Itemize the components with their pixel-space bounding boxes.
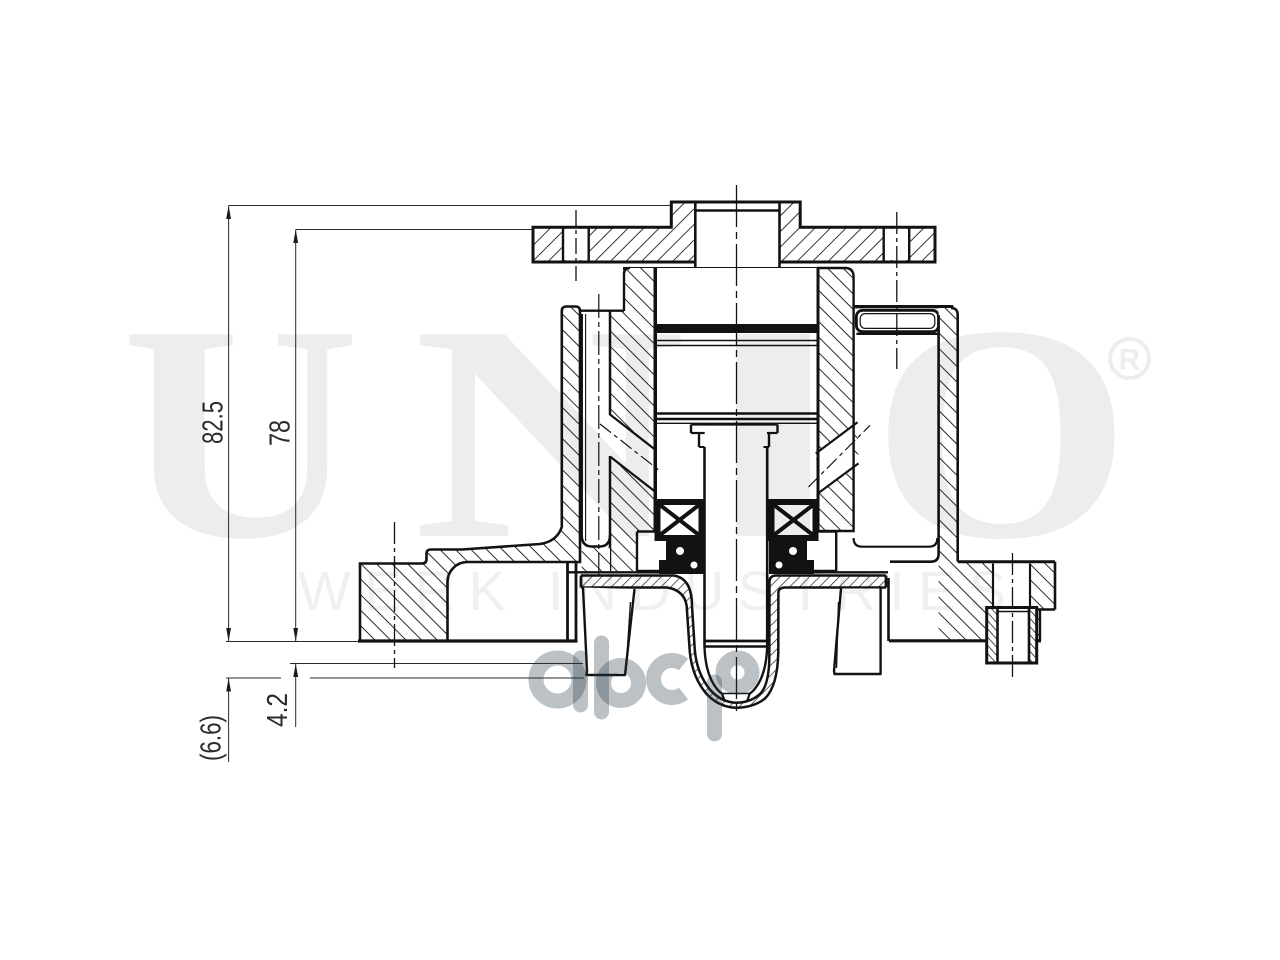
svg-text:N: N xyxy=(413,262,685,603)
svg-text:R: R xyxy=(1119,344,1141,377)
svg-text:4.2: 4.2 xyxy=(262,693,294,727)
svg-text:O: O xyxy=(872,262,1131,603)
svg-text:U: U xyxy=(121,262,360,603)
svg-text:(6.6): (6.6) xyxy=(196,715,228,761)
